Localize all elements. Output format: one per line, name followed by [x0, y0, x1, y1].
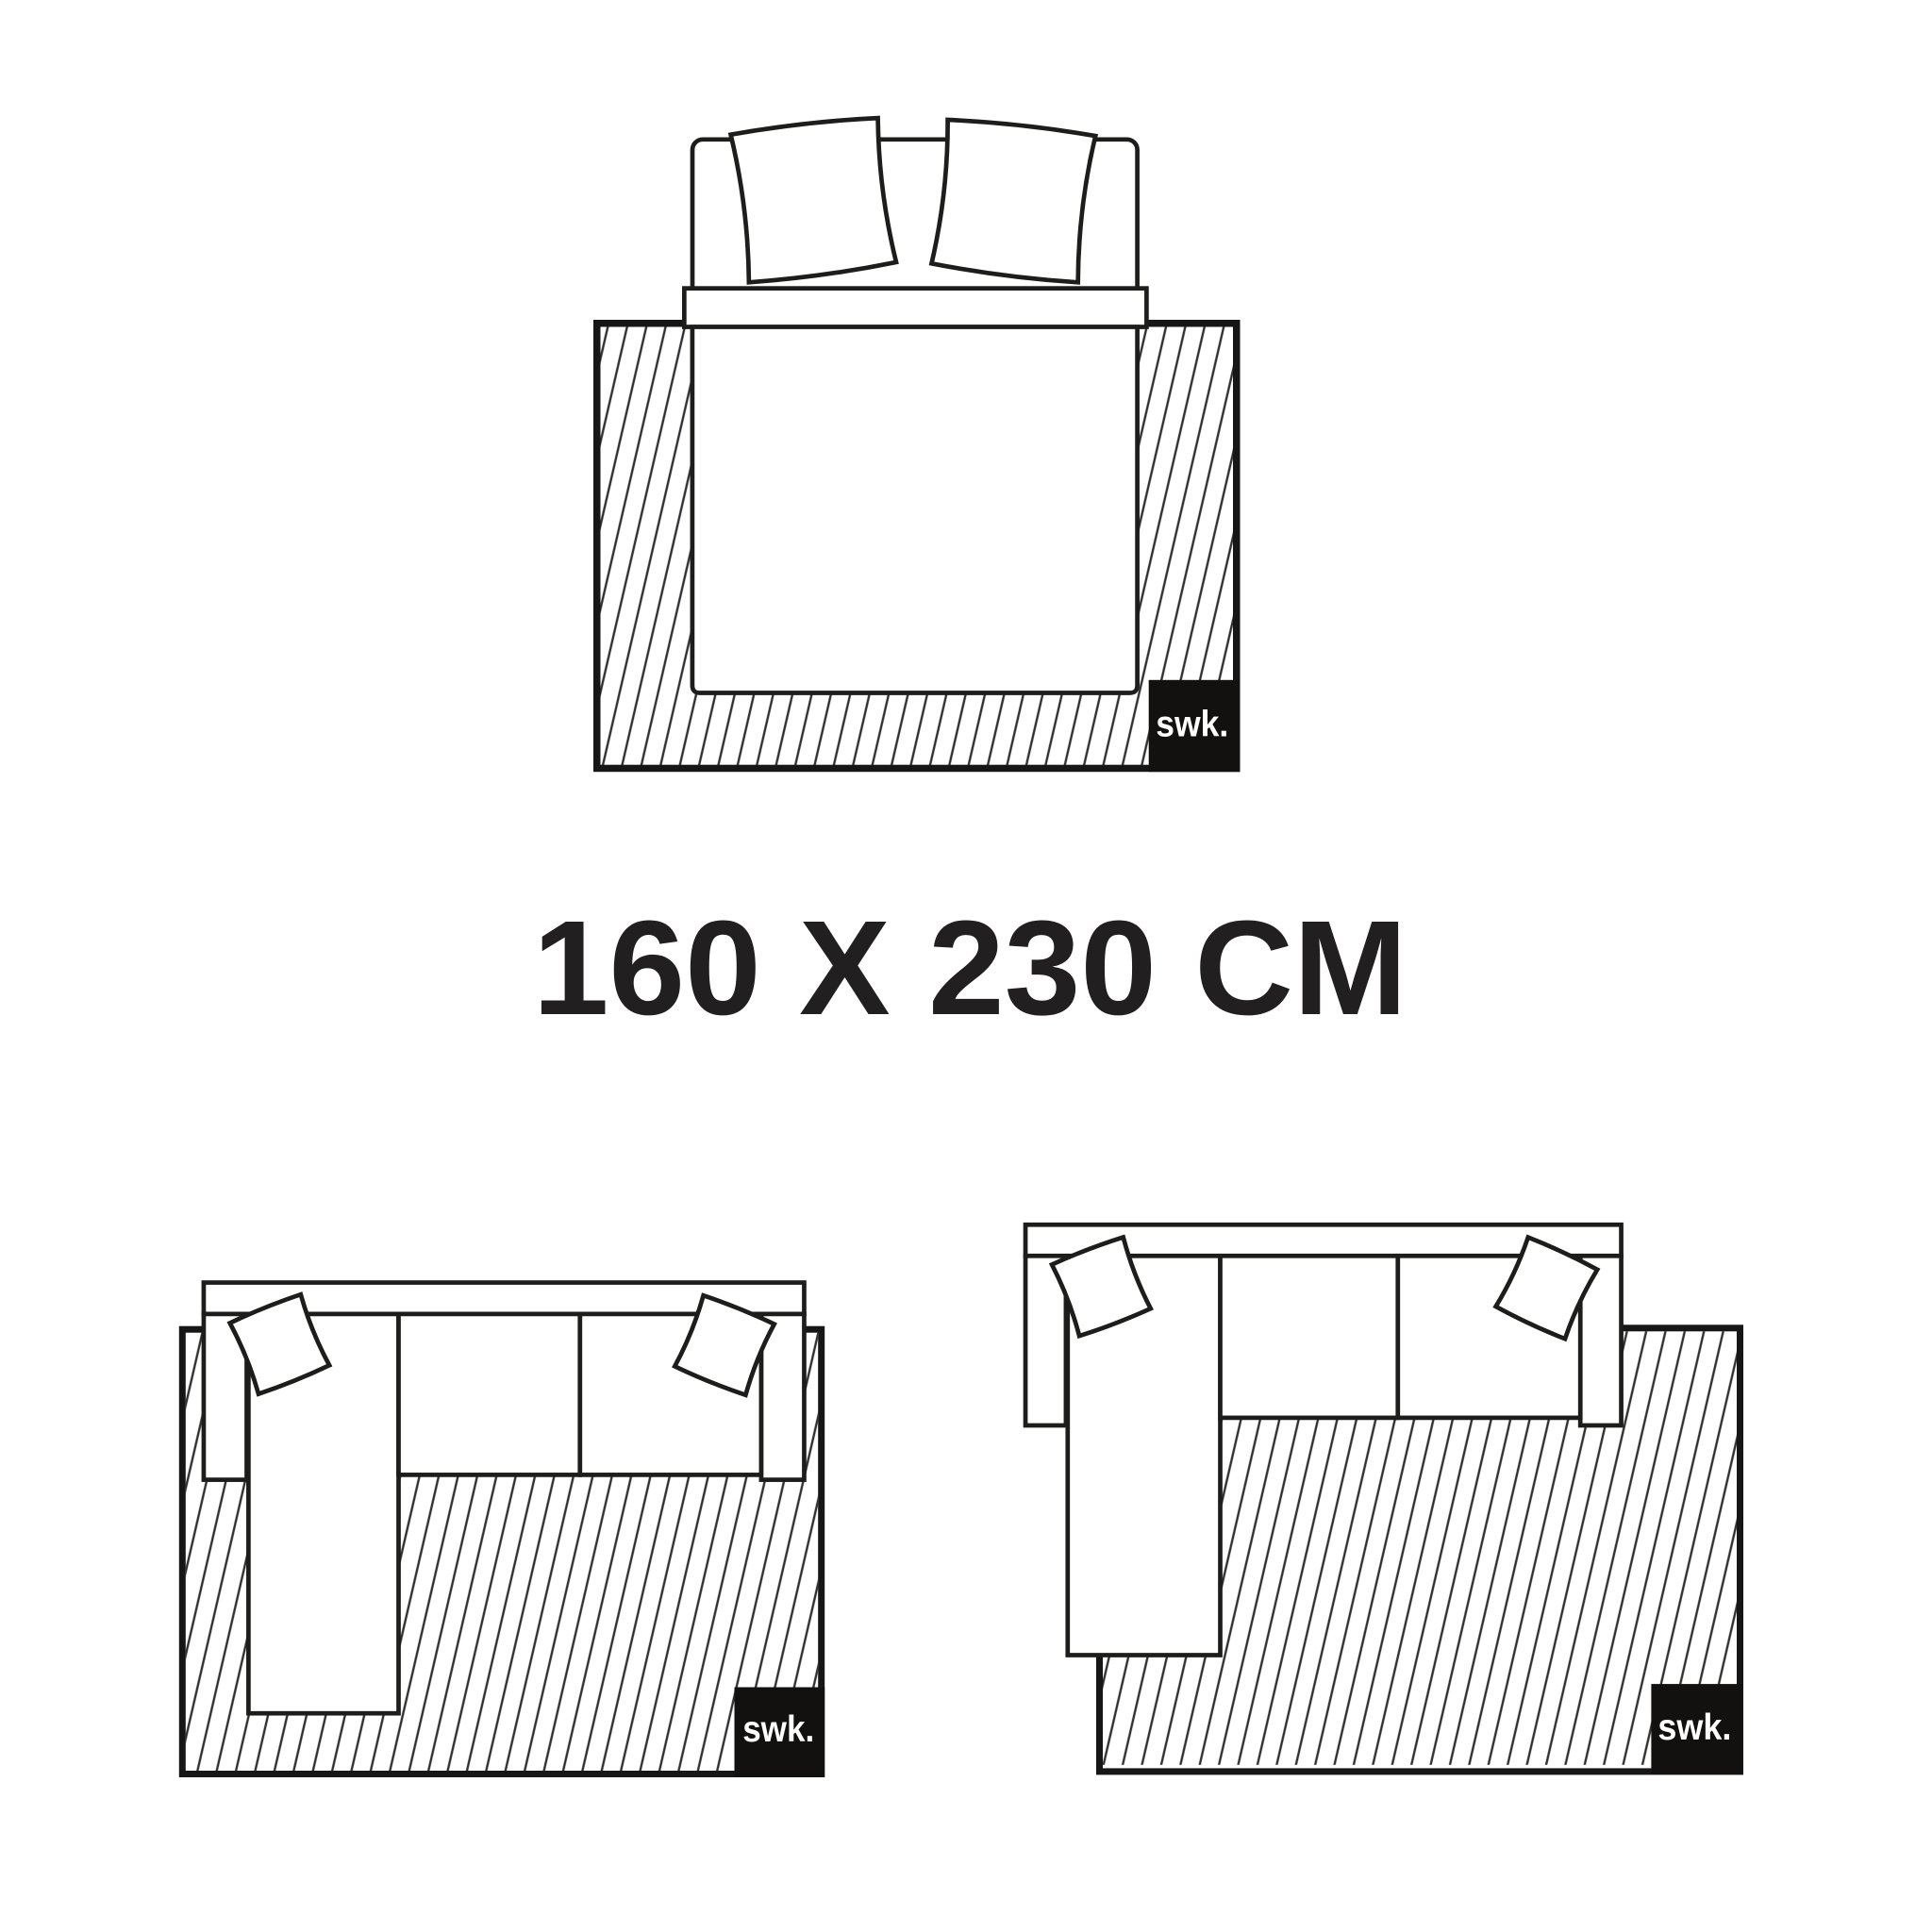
svg-text:swk.: swk. [1657, 1707, 1731, 1748]
svg-text:swk.: swk. [742, 1709, 814, 1750]
svg-text:swk.: swk. [1156, 705, 1228, 745]
svg-text:160 X 230 CM: 160 X 230 CM [533, 893, 1407, 1043]
